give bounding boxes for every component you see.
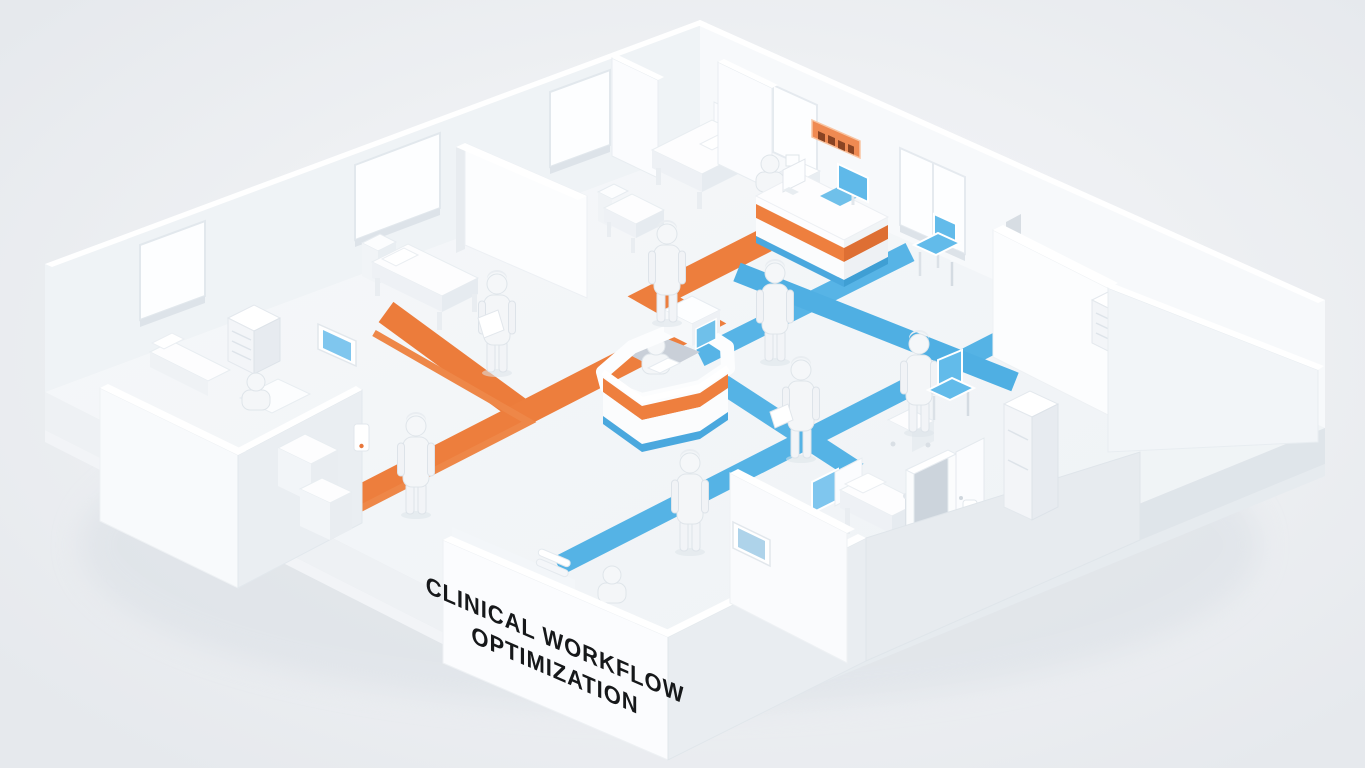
sanitizer-dispenser-left bbox=[354, 424, 369, 451]
clinic-floorplan-illustration: CLINICAL WORKFLOW OPTIMIZATION bbox=[0, 0, 1365, 768]
tall-cabinet-bottom-right bbox=[1004, 391, 1058, 520]
drawer-unit-left-room bbox=[228, 305, 280, 374]
isometric-scene: CLINICAL WORKFLOW OPTIMIZATION bbox=[0, 0, 1365, 768]
